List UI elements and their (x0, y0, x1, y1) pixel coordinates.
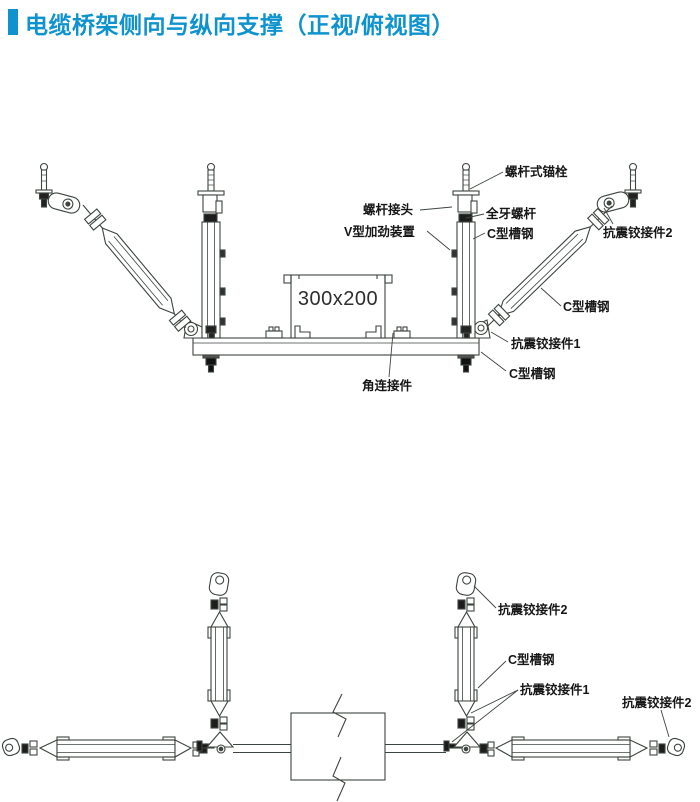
label-c-channel-bottom: C型槽钢 (509, 368, 556, 382)
diagonal-brace-left (77, 200, 192, 333)
plan-vertical-brace-right (455, 572, 477, 730)
label-plan-hinge-1: 抗震铰接件1 (520, 684, 589, 698)
plan-brace-left (1, 737, 207, 760)
plan-cable-tray-break (291, 694, 385, 801)
label-threaded-rod: 全牙螺杆 (486, 208, 536, 222)
label-v-stiffener: V型加劲装置 (344, 226, 415, 240)
label-hinge-1: 抗震铰接件1 (511, 338, 580, 352)
label-plan-c-channel: C型槽钢 (508, 654, 555, 668)
label-plan-hinge-2-right: 抗震铰接件2 (622, 697, 691, 711)
page: 电缆桥架侧向与纵向支撑（正视/俯视图） (0, 0, 700, 802)
plan-brace-right (480, 737, 686, 760)
hinge2-right (595, 190, 630, 214)
plan-junction-right (444, 732, 480, 753)
plan-vertical-brace-left (208, 572, 230, 730)
label-anchor-bolt: 螺杆式锚栓 (505, 166, 568, 180)
rod-coupler-hook-right (471, 201, 477, 213)
diagram-line-art (0, 0, 700, 802)
label-hinge-2: 抗震铰接件2 (603, 227, 672, 241)
label-c-channel-vertical: C型槽钢 (487, 228, 534, 242)
tray-size-label: 300x200 (293, 288, 383, 311)
hinge2-left (46, 191, 81, 215)
plan-junction-left (197, 732, 233, 753)
bottom-channel (193, 338, 479, 355)
rod-coupler-hook-left (216, 201, 222, 213)
label-rod-coupler: 螺杆接头 (363, 204, 413, 218)
label-angle-connector: 角连接件 (362, 380, 412, 394)
label-plan-hinge-2-top: 抗震铰接件2 (498, 604, 567, 618)
label-c-channel-diagonal: C型槽钢 (563, 301, 610, 315)
